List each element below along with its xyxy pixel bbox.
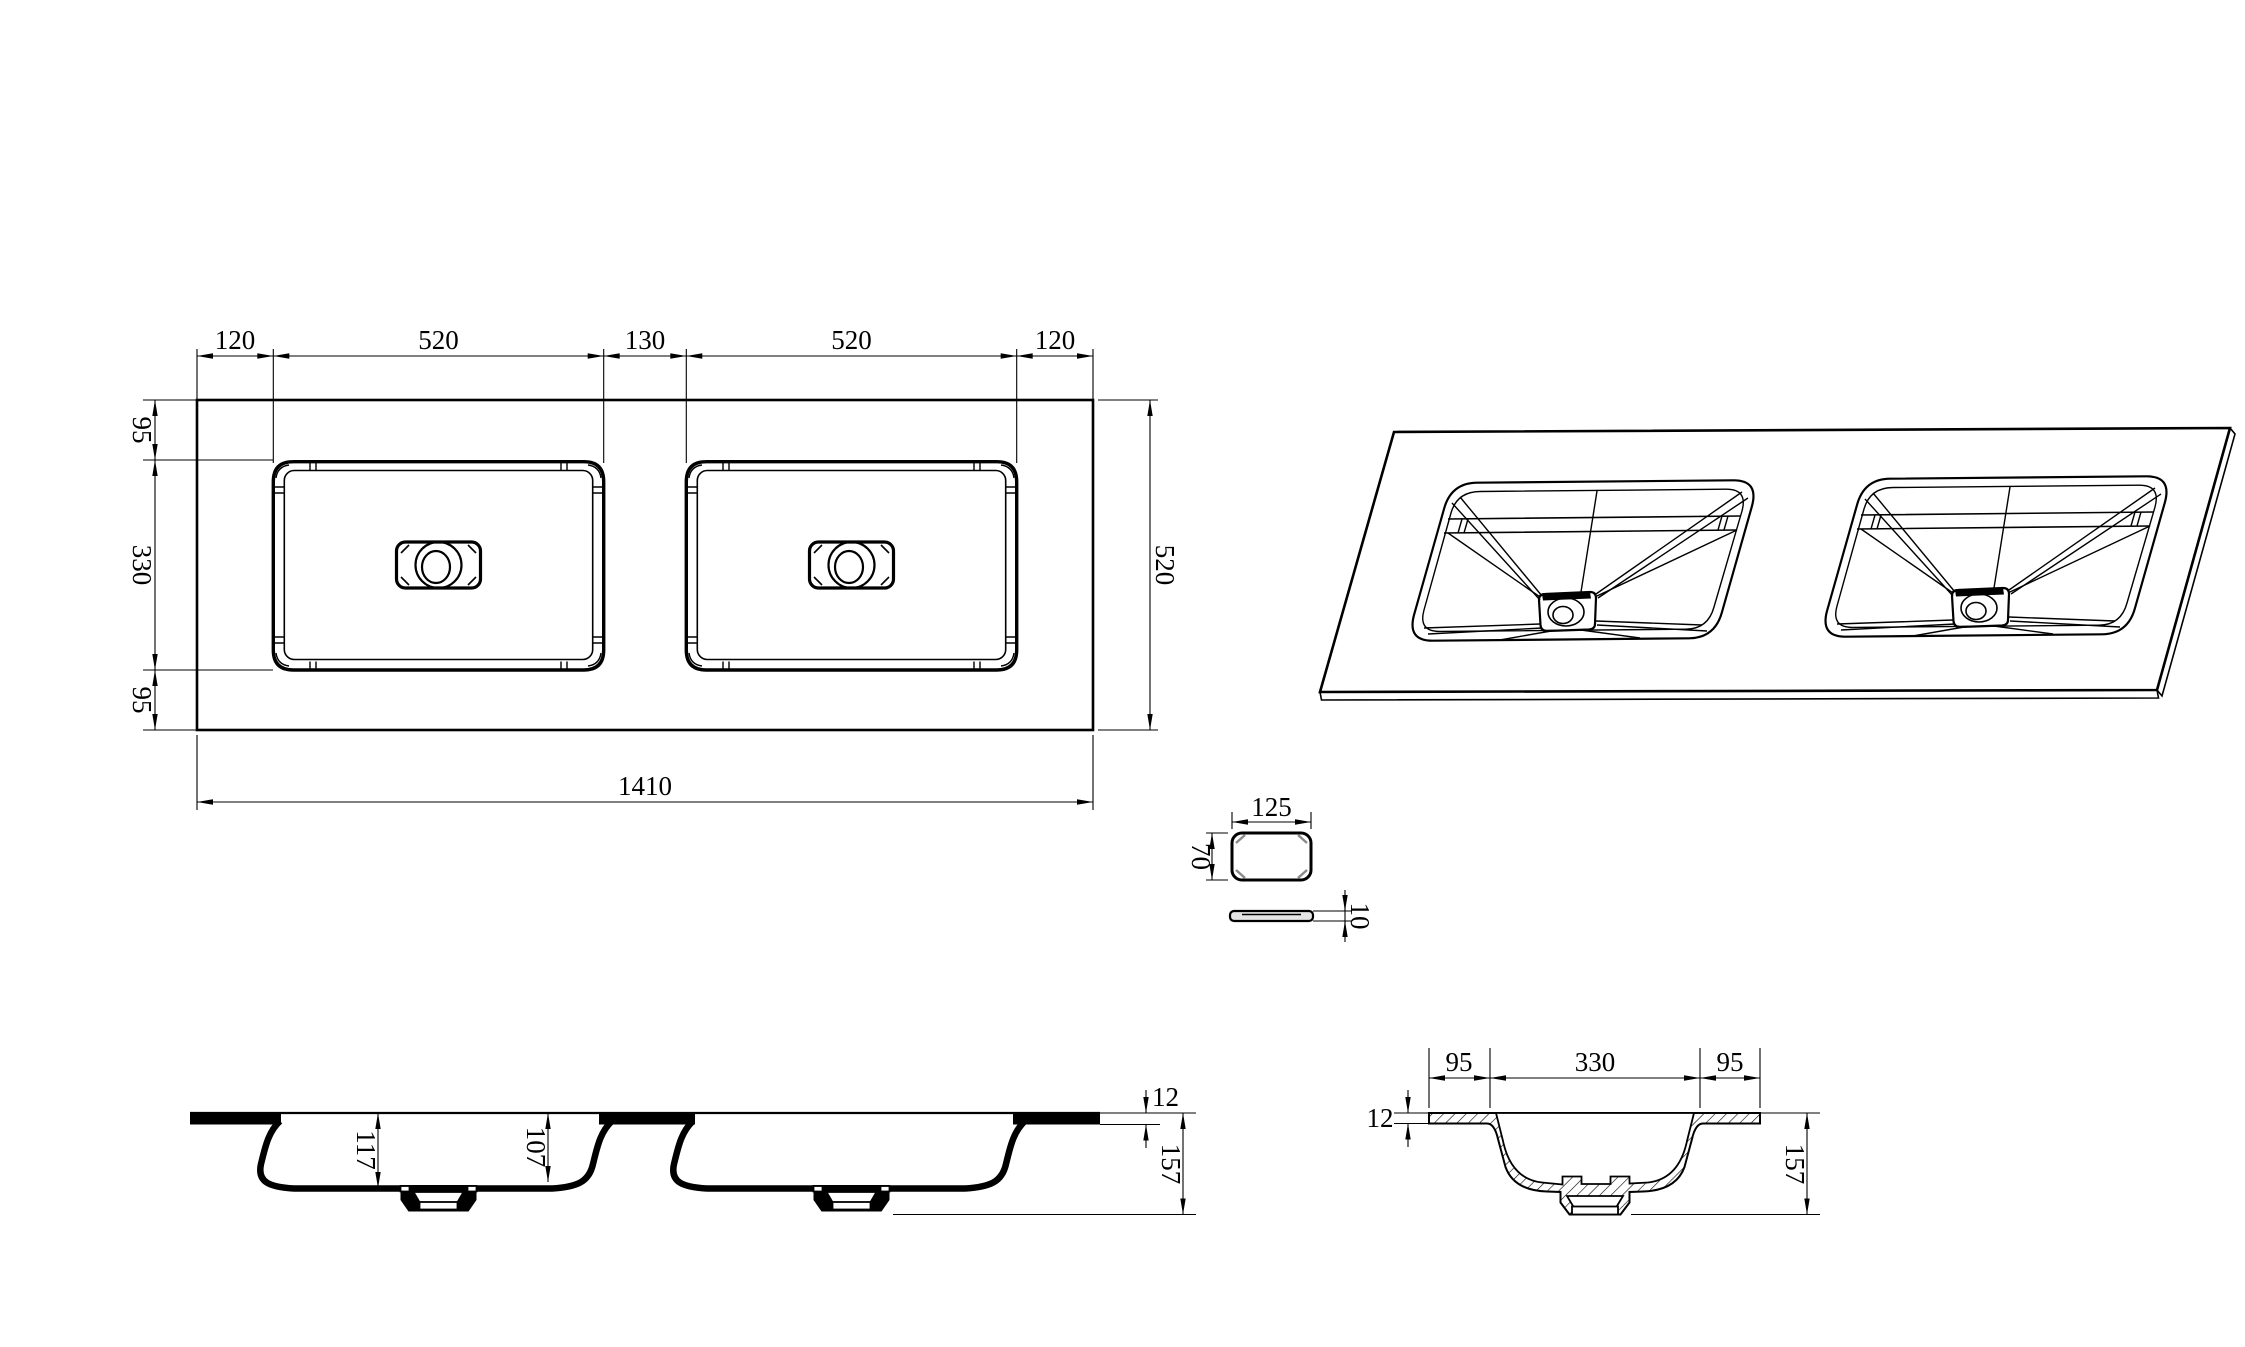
plan-view: 120 520 130 520 120 95 330 95 1410 520	[127, 325, 1180, 810]
section-long-height-dimension: 157	[893, 1113, 1196, 1215]
iso-slab-outline	[1320, 428, 2230, 692]
plan-bottom-dimension: 1410	[197, 735, 1093, 810]
section-drain-boss-left	[401, 1185, 477, 1212]
dim-label-total-depth: 520	[1150, 545, 1180, 586]
detail-thickness-dimension: 10	[1313, 890, 1375, 942]
dim-label-cross-margin-left: 95	[1446, 1047, 1473, 1077]
dim-label-left-sink-width: 520	[418, 325, 459, 355]
drain-cover-detail: 125 70 10	[1186, 792, 1375, 942]
dim-label-front-margin: 95	[127, 417, 157, 444]
dim-label-sink-depth: 330	[127, 545, 157, 586]
section-cross-thickness-dimension: 12	[1367, 1090, 1430, 1147]
iso-basin-left	[1413, 480, 1754, 640]
dim-label-right-sink-width: 520	[831, 325, 872, 355]
plan-top-dimensions: 120 520 130 520 120	[197, 325, 1093, 524]
dim-label-cover-width: 125	[1251, 792, 1292, 822]
dim-label-center-gap: 130	[625, 325, 666, 355]
plan-sink-right	[686, 462, 1016, 670]
section-crosswise: 95 330 95 12 157	[1367, 1047, 1821, 1215]
section-drain-boss-right	[814, 1185, 890, 1212]
dim-label-back-margin: 95	[127, 687, 157, 714]
drain-cover-top-view	[1232, 833, 1311, 880]
drain-cover-side-view	[1230, 911, 1313, 921]
iso-slab-thickness-right	[2157, 428, 2235, 696]
plan-countertop-outline	[197, 400, 1093, 730]
dim-label-top-thickness: 12	[1152, 1082, 1179, 1112]
plan-right-dimension: 520	[1098, 400, 1180, 730]
dim-label-cover-height: 70	[1186, 843, 1216, 870]
section-cross-basin-cavity	[1496, 1113, 1694, 1185]
dim-label-depth-at-drain: 117	[351, 1130, 381, 1170]
dim-label-cross-margin-right: 95	[1717, 1047, 1744, 1077]
dim-label-depth-at-wall: 107	[521, 1127, 551, 1168]
plan-left-dimensions: 95 330 95	[127, 400, 273, 730]
dim-label-cross-total-height: 157	[1780, 1144, 1810, 1185]
section-cross-top-dimensions: 95 330 95	[1429, 1047, 1760, 1108]
section-long-depth-dimensions: 117 107	[351, 1113, 551, 1188]
section-long-thickness-dimension: 12	[1100, 1082, 1196, 1148]
detail-width-dimension: 125	[1232, 792, 1311, 829]
dim-label-right-margin: 120	[1035, 325, 1076, 355]
plan-sink-left	[273, 462, 603, 670]
dim-label-total-height: 157	[1156, 1144, 1186, 1185]
drawing-canvas: 120 520 130 520 120 95 330 95 1410 520	[0, 0, 2245, 1347]
iso-basin-right	[1826, 476, 2167, 636]
isometric-view	[1320, 428, 2235, 700]
dim-label-cross-top-thickness: 12	[1367, 1103, 1394, 1133]
technical-drawing-sheet: 120 520 130 520 120 95 330 95 1410 520	[0, 0, 2245, 1347]
dim-label-total-width: 1410	[618, 771, 672, 801]
dim-label-cover-thickness: 10	[1345, 903, 1375, 930]
section-lengthwise: 117 107 12 157	[190, 1082, 1196, 1215]
dim-label-cross-basin-width: 330	[1575, 1047, 1616, 1077]
dim-label-left-margin: 120	[215, 325, 256, 355]
detail-height-dimension: 70	[1186, 833, 1228, 880]
